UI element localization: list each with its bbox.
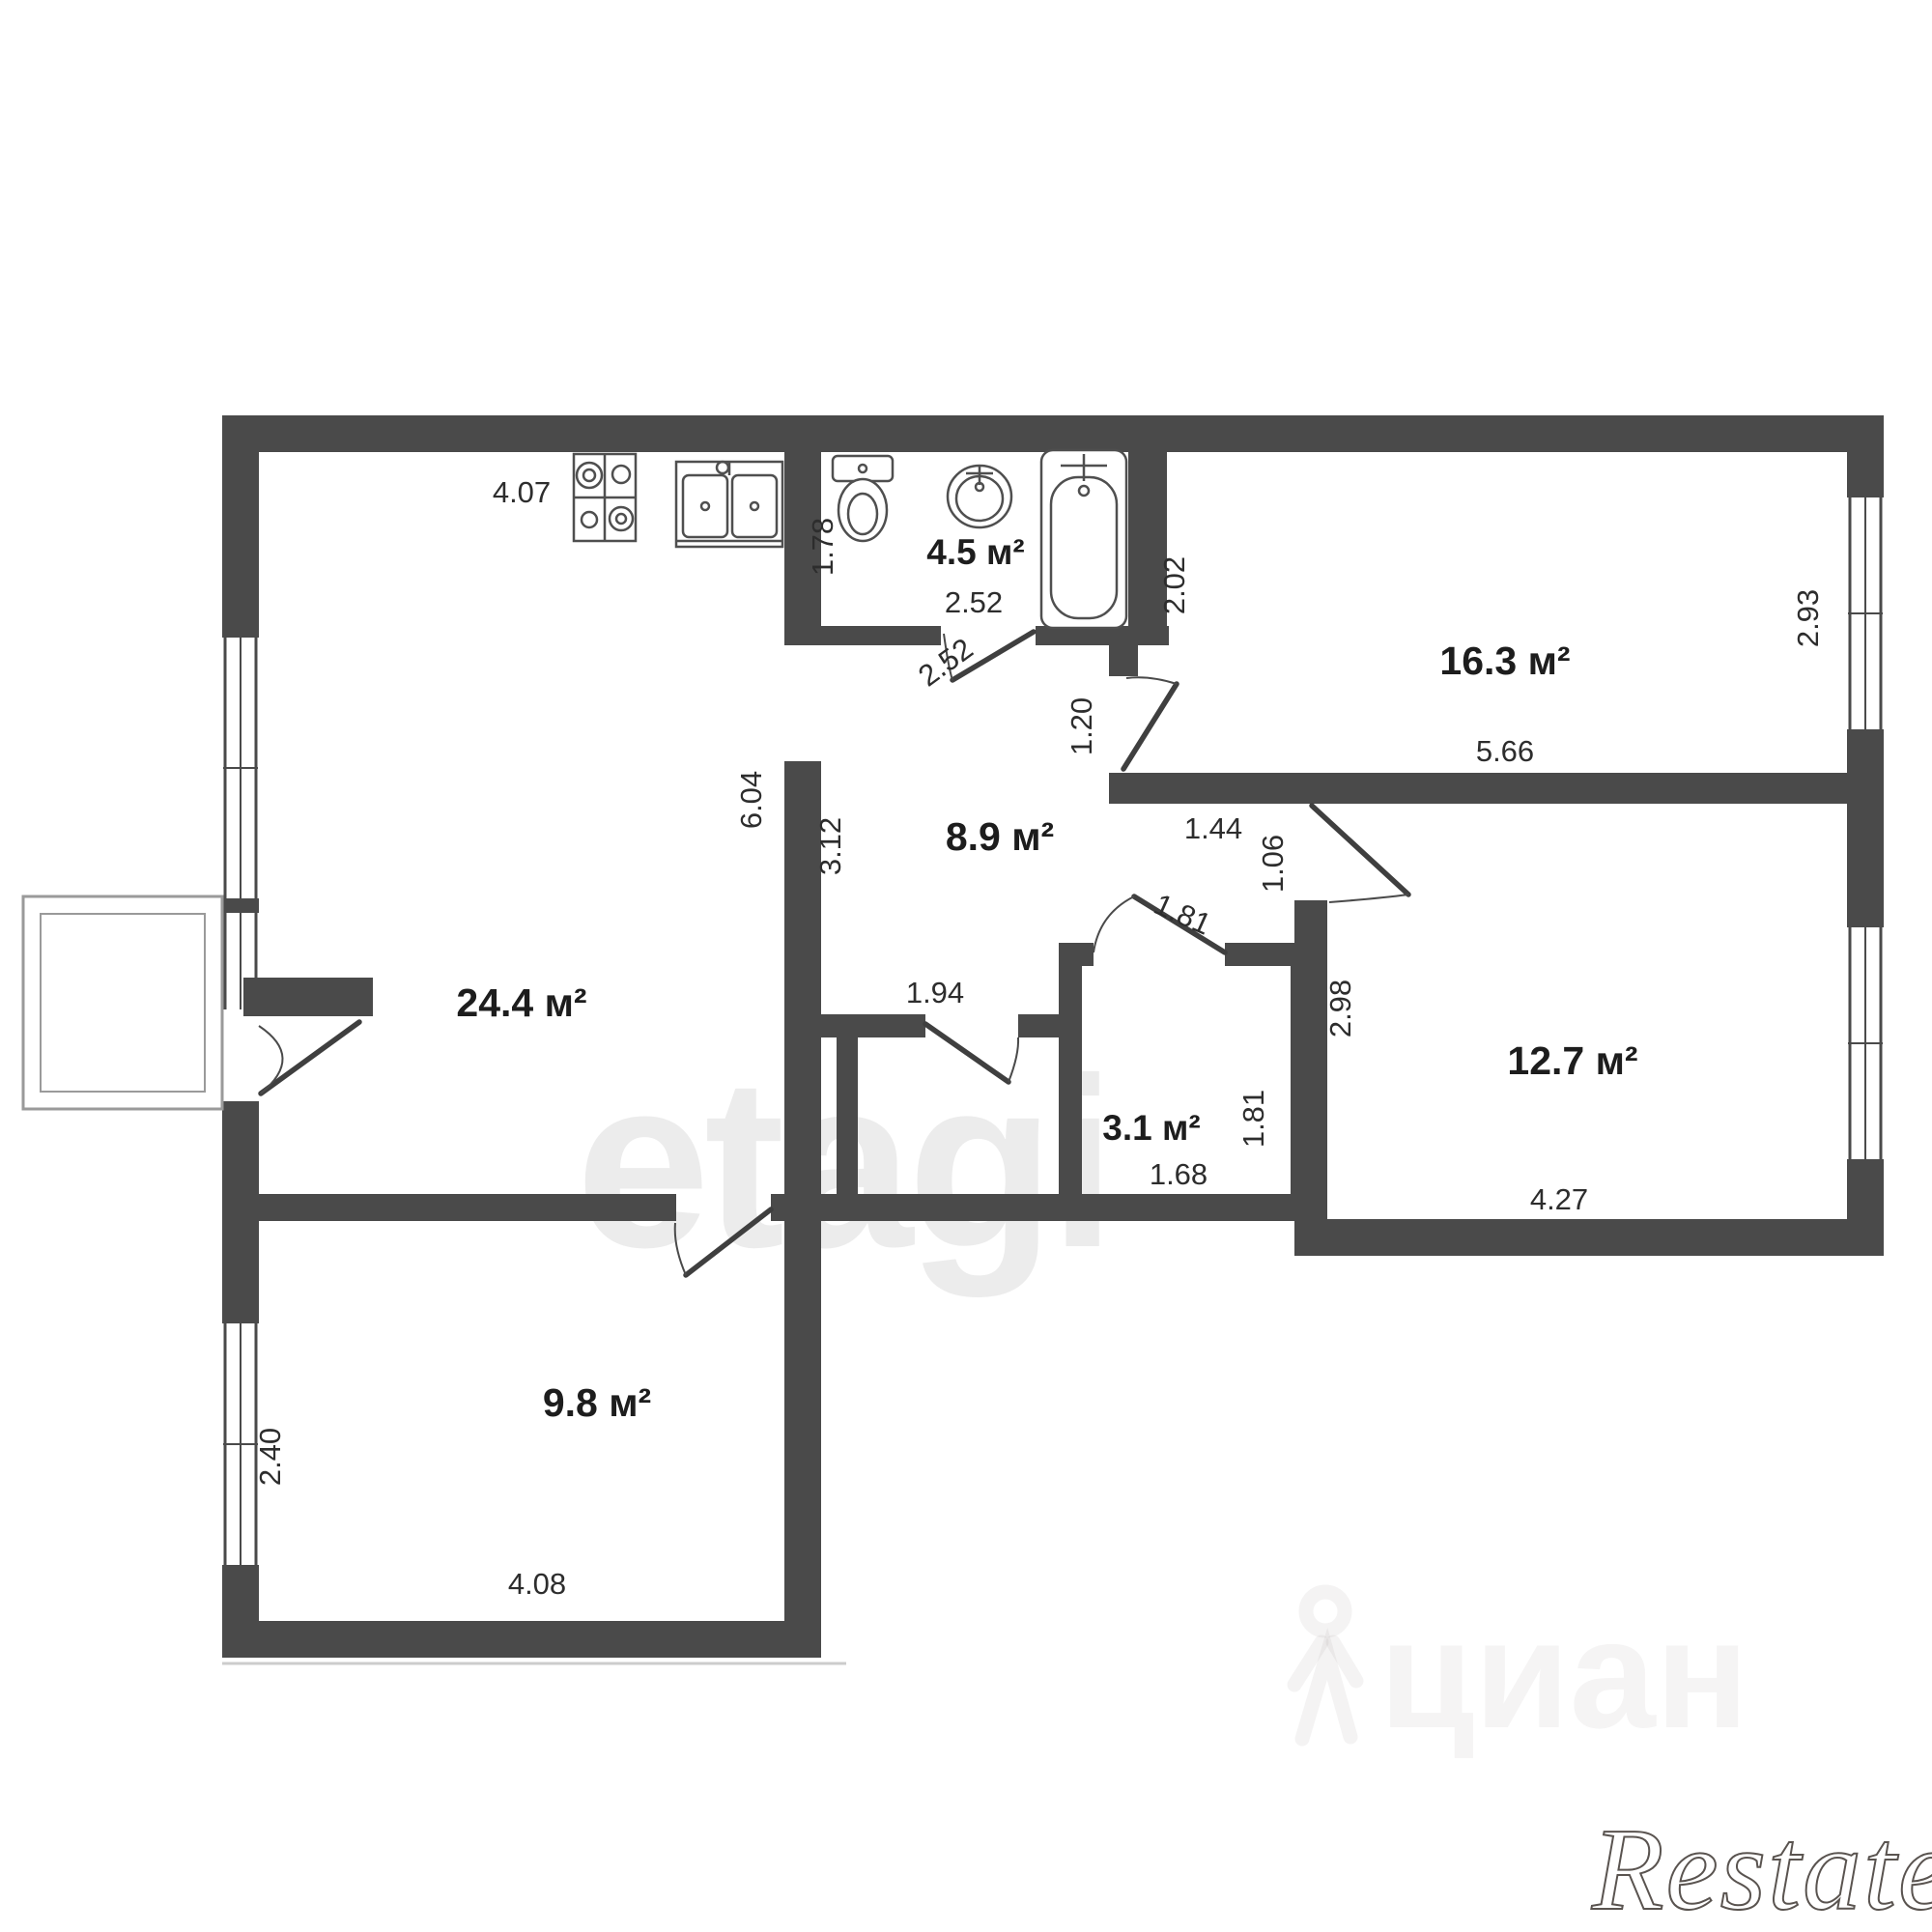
wall-outer-left-2 (222, 898, 259, 913)
wall-mid-bottom-right (771, 1194, 1314, 1221)
room-label-storage: 3.1 м² (1102, 1108, 1200, 1148)
dim-kitchen-top: 4.07 (493, 475, 551, 509)
dim-door-storage: 1.81 (1150, 887, 1216, 942)
washbasin-icon (948, 466, 1011, 527)
wall-hall-bottom-left (821, 1014, 925, 1037)
bathtub-icon (1041, 450, 1126, 628)
dim-door-room16: 1.20 (1065, 697, 1098, 755)
room-label-bathroom: 4.5 м² (926, 532, 1024, 572)
wall-living-stub (243, 978, 373, 1016)
cian-person-icon (1294, 1592, 1356, 1739)
door-balcony (259, 1022, 359, 1094)
dim-room12-bottom: 4.27 (1530, 1182, 1588, 1216)
watermark-cian-text: циан (1379, 1587, 1748, 1760)
wall-outer-bottom-right (1294, 1219, 1884, 1256)
wall-outer-left-1 (222, 415, 259, 638)
room-label-living: 24.4 м² (456, 980, 586, 1025)
dim-room9-left: 2.40 (253, 1428, 287, 1486)
door-room16 (1123, 677, 1177, 769)
dim-room12-left: 2.98 (1323, 980, 1357, 1037)
dim-room16-left: 2.02 (1157, 556, 1191, 614)
watermark-restate: Restate (1591, 1804, 1932, 1932)
wall-bath-bottom-left (784, 626, 941, 645)
room-label-room16: 16.3 м² (1439, 639, 1570, 683)
stove-icon (574, 454, 636, 541)
kitchen-sink-icon (676, 462, 782, 547)
wall-outer-right-1 (1847, 415, 1884, 497)
dim-room16-bottom: 5.66 (1476, 734, 1534, 768)
window-room16-icon (1848, 497, 1883, 729)
wall-storage-left (1059, 966, 1082, 1194)
balcony-outer (23, 896, 222, 1109)
room-label-hallway: 8.9 м² (946, 814, 1054, 859)
dim-hall-left: 3.12 (813, 817, 847, 875)
wall-storage-top-right (1225, 943, 1314, 966)
wall-outer-top (222, 415, 1884, 452)
wall-storage-right (1291, 966, 1314, 1194)
dim-storage-bottom: 1.68 (1150, 1157, 1207, 1191)
dim-door-room12: 1.06 (1256, 835, 1290, 893)
window-living-icon (223, 638, 258, 898)
dim-bath-width: 2.52 (945, 585, 1003, 619)
wall-duct (837, 1037, 858, 1194)
wall-mid-bottom-left (222, 1194, 676, 1221)
dim-room9-bottom: 4.08 (508, 1567, 566, 1601)
wall-outer-bottom-left (222, 1621, 821, 1658)
toilet-icon (833, 456, 893, 541)
wall-storage-top-left (1059, 943, 1094, 966)
dim-living-right: 6.04 (734, 771, 768, 829)
room-label-room9: 9.8 м² (543, 1380, 651, 1425)
wall-room9-right (784, 1194, 821, 1658)
door-room12 (1312, 806, 1408, 902)
room-label-room12: 12.7 м² (1507, 1038, 1637, 1083)
watermark-cian: циан (1294, 1587, 1748, 1760)
balcony-inner (41, 914, 205, 1092)
dim-hall-ext-top: 1.44 (1184, 811, 1242, 845)
dim-room16-window: 2.93 (1791, 589, 1825, 647)
dim-hall-bottom: 1.94 (906, 976, 964, 1009)
wall-room16-bottom (1109, 773, 1884, 804)
floor-plan-svg: etagi (0, 0, 1932, 1932)
dim-storage-right: 1.81 (1236, 1090, 1270, 1148)
dim-bath-height: 1.78 (806, 518, 839, 576)
balcony (23, 896, 222, 1109)
fixtures (574, 450, 1126, 628)
wall-outer-right-2 (1847, 729, 1884, 927)
window-room12-icon (1848, 927, 1883, 1159)
wall-room16-door-stub (1109, 645, 1138, 676)
